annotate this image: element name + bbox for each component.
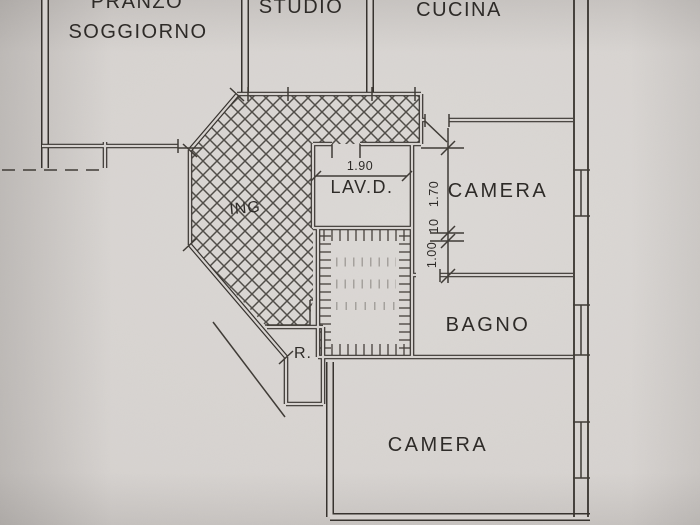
room-label-ingresso: ING (229, 199, 262, 219)
dim-lavd-width: 1.90 (347, 159, 373, 173)
room-label-pranzo: PRANZO (91, 0, 183, 13)
paper-grain (0, 0, 700, 525)
room-label-cucina: CUCINA (416, 0, 502, 21)
room-label-ripostiglio: R. (294, 345, 312, 362)
room-label-lavd: LAV.D. (330, 177, 393, 197)
room-label-bagno: BAGNO (446, 314, 531, 336)
room-label-camera-top: CAMERA (448, 180, 549, 202)
dim-span-long: 1.70 (427, 181, 441, 207)
floor-plan-svg: PRANZO SOGGIORNO STUDIO CUCINA ING LAV.D… (0, 0, 700, 525)
room-label-camera-bottom: CAMERA (388, 434, 489, 456)
room-label-studio: STUDIO (259, 0, 344, 18)
dim-span-short: 1.00 (425, 242, 439, 268)
dim-wall-thickness: 10 (427, 219, 441, 234)
room-label-soggiorno: SOGGIORNO (68, 21, 207, 43)
floorplan-photo: PRANZO SOGGIORNO STUDIO CUCINA ING LAV.D… (0, 0, 700, 525)
